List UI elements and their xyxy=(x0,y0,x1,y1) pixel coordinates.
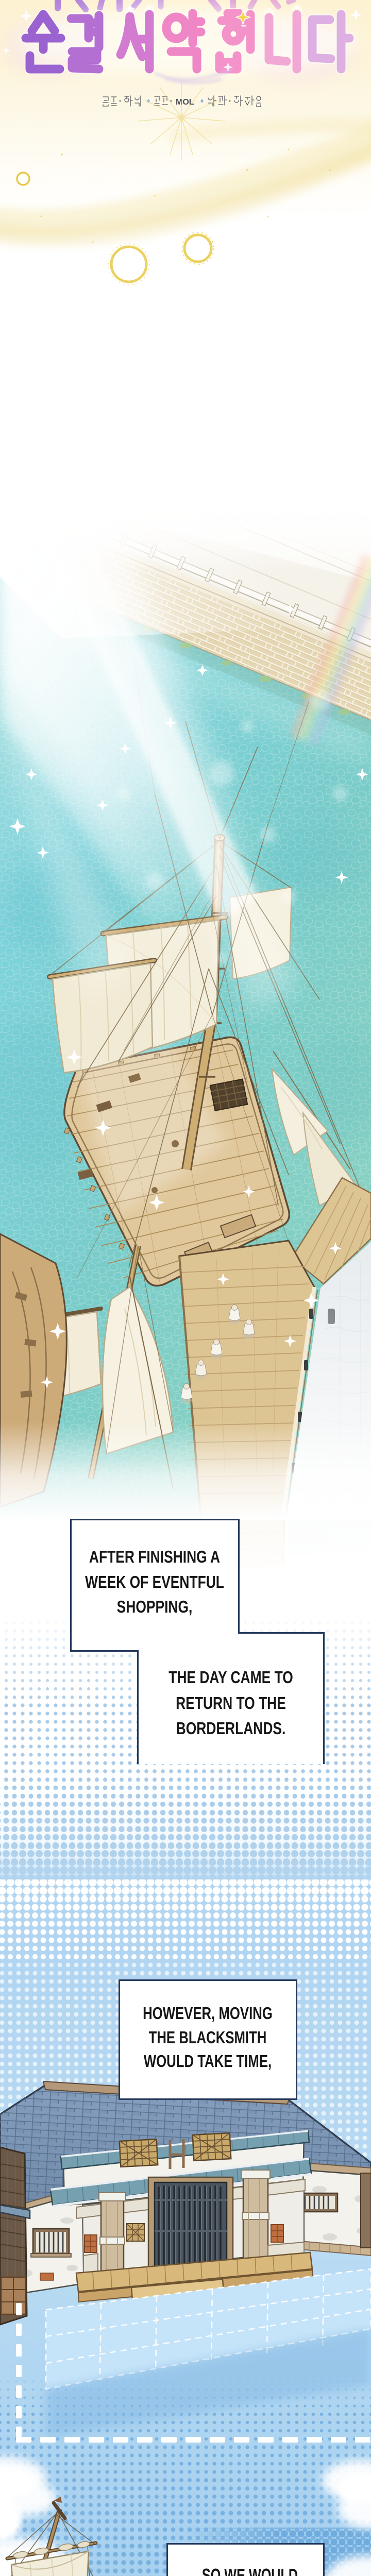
svg-text:MOL: MOL xyxy=(176,98,194,107)
